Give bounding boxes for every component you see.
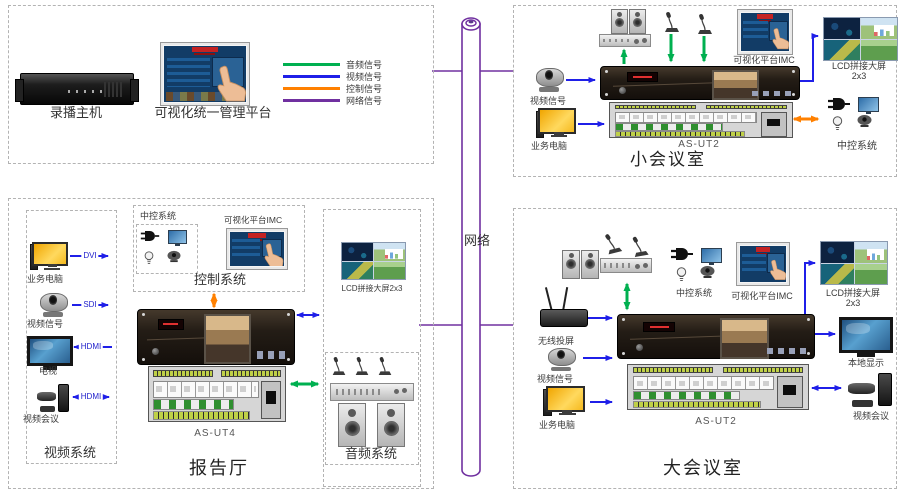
hall-central-label: 中控系统 [140, 211, 176, 221]
network-label: 网络 [464, 233, 478, 249]
large-room-wireless-label: 无线投屏 [538, 336, 574, 346]
hall-tv-label: 电视 [39, 366, 57, 376]
camera-icon [38, 291, 68, 317]
speaker-icon [581, 250, 599, 279]
legend-label-control: 控制信号 [346, 84, 382, 94]
legend-label-network: 网络信号 [346, 96, 382, 106]
legend-label-audio: 音频信号 [346, 60, 382, 70]
imc-touchpanel-device [226, 228, 288, 270]
hall-audio-system-title: 音频系统 [345, 447, 397, 462]
microphone-icon [330, 356, 348, 376]
legend-line-video [283, 75, 340, 78]
as-ut4-matrix-unit [148, 366, 286, 422]
small-room-unit-label: AS-UT2 [678, 139, 720, 151]
as-ut2-main-unit [600, 66, 800, 100]
recording-host-label: 录播主机 [50, 106, 102, 121]
video-conference-icon [36, 384, 70, 412]
hall-pc-label: 业务电脑 [27, 274, 63, 284]
legend-line-audio [283, 63, 340, 66]
hall-control-system-title: 控制系统 [194, 273, 246, 288]
as-ut2-matrix-unit [609, 102, 793, 138]
pointing-hand-icon [203, 62, 246, 102]
hdmi-conn-label: HDMI [79, 392, 103, 401]
camera-small-icon [699, 265, 716, 279]
management-platform-device [160, 42, 250, 106]
display-icon [858, 97, 879, 112]
speaker-icon [377, 403, 405, 447]
management-platform-label: 可视化统一管理平台 [154, 106, 271, 121]
amplifier-icon [600, 258, 652, 273]
business-pc-icon [543, 386, 585, 418]
recording-host-device [20, 73, 134, 105]
large-room-lcd-size: 2x3 [846, 298, 861, 308]
large-room-lcd-label: LCD拼接大屏 [826, 288, 880, 298]
legend-label-video: 视频信号 [346, 72, 382, 82]
microphone-icon [695, 13, 715, 35]
wireless-casting-icon [540, 287, 586, 331]
large-room-pc-label: 业务电脑 [539, 420, 575, 430]
light-bulb-icon [831, 115, 844, 132]
small-room-lcd-label: LCD拼接大屏 [832, 61, 886, 71]
camera-small-icon [166, 250, 182, 263]
microphone-icon [662, 11, 682, 33]
imc-touchpanel-device [736, 242, 790, 286]
legend-line-control [283, 87, 340, 90]
large-room-vc-label: 视频会议 [853, 411, 889, 421]
speaker-icon [338, 403, 366, 447]
power-plug-icon [827, 96, 851, 112]
camera-small-icon [856, 114, 873, 128]
sdi-conn-label: SDI [81, 300, 98, 309]
speaker-icon [562, 250, 580, 279]
as-ut2-main-unit [617, 314, 815, 359]
as-ut2-matrix-unit [627, 364, 809, 410]
pointing-hand-icon [255, 242, 284, 266]
large-room-display-label: 本地显示 [848, 358, 884, 368]
imc-label: 可视化平台IMC [733, 55, 795, 65]
small-room-pc-label: 业务电脑 [531, 141, 567, 151]
lcd-wall-icon [823, 17, 898, 61]
hall-camera-label: 视频信号 [27, 319, 63, 329]
av-system-diagram: 网络 录播主机 可视化统一管理平台 音频信号 视频信号 控制信号 网络信号 可视… [0, 0, 900, 490]
power-plug-icon [670, 246, 694, 262]
camera-icon [534, 66, 564, 92]
hall-video-system-title: 视频系统 [44, 446, 96, 461]
dvi-conn-label: DVI [81, 251, 98, 260]
hall-title: 报告厅 [189, 458, 249, 479]
microphone-icon [628, 233, 652, 258]
large-room-imc-label: 可视化平台IMC [731, 291, 793, 301]
business-pc-icon [30, 242, 68, 272]
hall-unit-label: AS-UT4 [194, 428, 236, 440]
hall-imc-label: 可视化平台IMC [224, 216, 282, 226]
speaker-icon [629, 9, 646, 34]
amplifier-icon [599, 34, 651, 47]
large-room-title: 大会议室 [663, 458, 743, 479]
hall-lcd-label: LCD拼接大屏2x3 [342, 284, 403, 293]
large-room-camera-label: 视频信号 [537, 374, 573, 384]
hall-vc-label: 视频会议 [23, 414, 59, 424]
pointing-hand-icon [762, 256, 786, 282]
display-icon [168, 230, 187, 244]
lcd-wall-icon [820, 241, 888, 285]
amplifier-icon [330, 383, 414, 401]
small-room-lcd-size: 2x3 [852, 71, 867, 81]
business-pc-icon [536, 108, 576, 140]
speaker-icon [611, 9, 628, 34]
hdmi-conn-label: HDMI [79, 342, 103, 351]
video-conference-icon [846, 373, 894, 407]
imc-touchpanel-device [737, 9, 793, 55]
large-room-central-label: 中控系统 [676, 288, 712, 298]
microphone-icon [353, 356, 371, 376]
display-icon [701, 248, 722, 263]
small-room-title: 小会议室 [630, 150, 706, 170]
light-bulb-icon [675, 266, 688, 283]
local-display-tv-icon [839, 317, 893, 353]
large-room-unit-label: AS-UT2 [695, 416, 737, 428]
tv-icon [27, 336, 73, 366]
legend-line-network [283, 99, 340, 102]
power-plug-icon [140, 229, 160, 243]
light-bulb-icon [143, 250, 155, 266]
pointing-hand-icon [764, 24, 789, 51]
camera-icon [546, 346, 576, 371]
small-room-camera-label: 视频信号 [530, 96, 566, 106]
microphone-icon [376, 356, 394, 376]
lcd-wall-icon [341, 242, 406, 280]
as-ut4-main-unit [137, 309, 295, 365]
small-room-central-label: 中控系统 [837, 141, 877, 153]
